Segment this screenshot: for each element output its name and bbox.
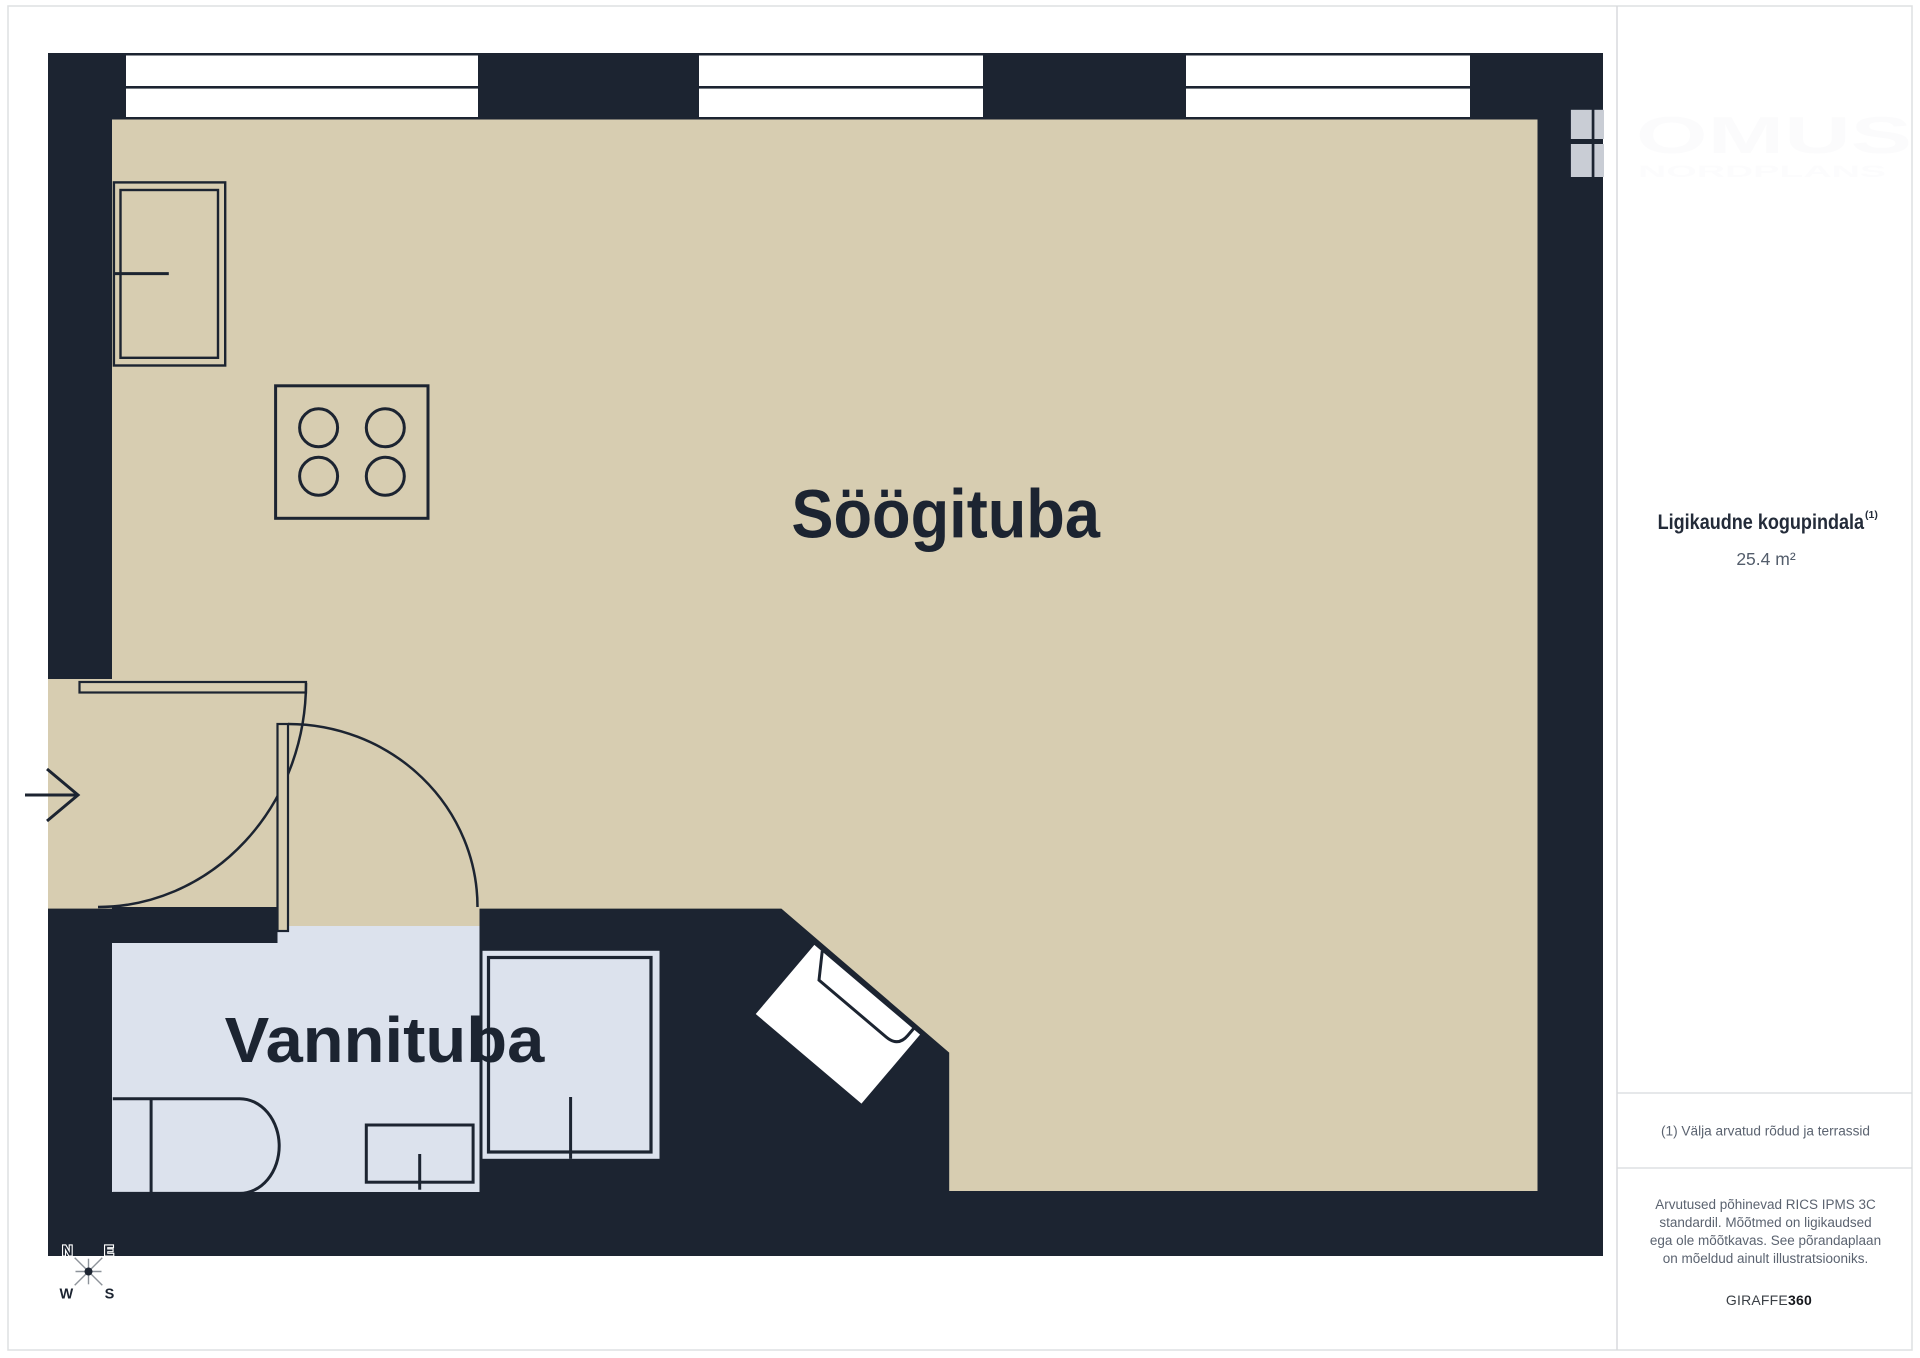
svg-text:on mõeldud ainult illustratsio: on mõeldud ainult illustratsiooniks.: [1663, 1251, 1869, 1266]
svg-text:25.4 m²: 25.4 m²: [1736, 549, 1795, 569]
svg-text:NORDPLANS: NORDPLANS: [1638, 162, 1886, 181]
svg-text:Söögituba: Söögituba: [791, 475, 1100, 552]
svg-text:standardil. Mõõtmed on ligikau: standardil. Mõõtmed on ligikaudsed: [1659, 1215, 1871, 1230]
svg-text:(1) Välja arvatud rõdud ja ter: (1) Välja arvatud rõdud ja terrassid: [1661, 1124, 1870, 1139]
svg-text:GIRAFFE360: GIRAFFE360: [1726, 1292, 1812, 1308]
svg-text:Ligikaudne kogupindala: Ligikaudne kogupindala: [1658, 511, 1865, 534]
svg-text:W: W: [59, 1287, 73, 1303]
svg-text:(1): (1): [1865, 509, 1878, 521]
svg-text:E: E: [104, 1244, 114, 1260]
svg-text:N: N: [62, 1244, 72, 1260]
svg-text:Vannituba: Vannituba: [225, 1004, 545, 1076]
svg-text:OMUS: OMUS: [1636, 107, 1912, 165]
svg-text:ega ole mõõtkavas. See põranda: ega ole mõõtkavas. See põrandaplaan: [1650, 1233, 1881, 1248]
svg-text:S: S: [105, 1287, 115, 1303]
svg-text:Arvutused põhinevad RICS IPMS: Arvutused põhinevad RICS IPMS 3C: [1655, 1197, 1876, 1212]
